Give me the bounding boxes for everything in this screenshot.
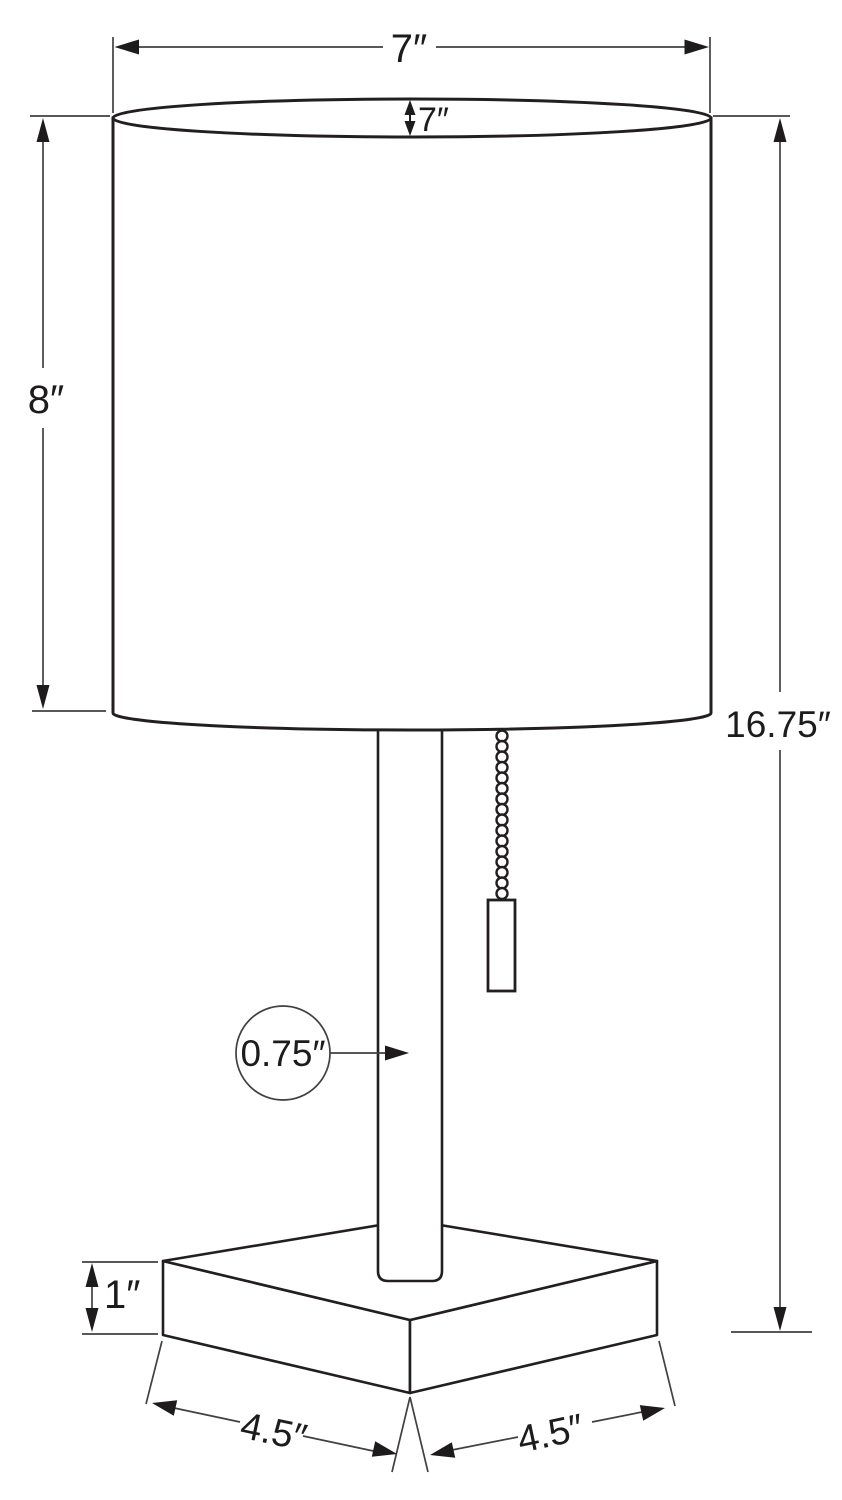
dim-extension-line [410,1397,428,1472]
dim-line [303,1436,378,1452]
shade-height-label: 8″ [28,378,64,422]
arrow-up-icon [774,118,787,142]
base-width-label: 4.5″ [514,1407,588,1462]
shade-top-depth-label: 7″ [418,101,449,139]
arrow-right-icon [640,1405,665,1421]
arrow-left-icon [430,1442,455,1458]
shade-width-label: 7″ [391,27,427,71]
arrow-down-icon [37,685,50,709]
arrow-right-icon [372,1441,397,1457]
arrow-left-icon [115,40,140,55]
arrow-down-icon [86,1308,99,1332]
lamp-shade [113,99,711,730]
base-height-label: 1″ [104,1273,140,1317]
lamp-shade-body [113,118,711,730]
pull-chain-handle [488,900,515,991]
dim-extension-line [659,1341,675,1406]
chain-bead [497,888,508,899]
arrow-down-icon [774,1307,787,1331]
overall-height-label: 16.75″ [725,704,831,745]
arrow-up-icon [37,118,50,142]
arrow-left-icon [152,1400,177,1416]
pull-chain [488,731,515,992]
dim-extension-line [146,1341,162,1404]
base-depth-label: 4.5″ [237,1405,311,1460]
arrow-right-icon [685,40,710,55]
dim-line [592,1412,642,1422]
lamp-pole [378,725,442,1281]
dim-line [452,1437,518,1450]
lamp-shade-top-ellipse [113,99,711,137]
dim-extension-line [392,1397,410,1472]
arrow-up-icon [86,1263,99,1287]
lamp-dimension-diagram: 7″ 7″ 8″ 16.75″ [0,0,842,1500]
pole-diameter-label: 0.75″ [240,1033,325,1074]
lamp-dimension-drawing: 7″ 7″ 8″ 16.75″ [0,0,842,1500]
